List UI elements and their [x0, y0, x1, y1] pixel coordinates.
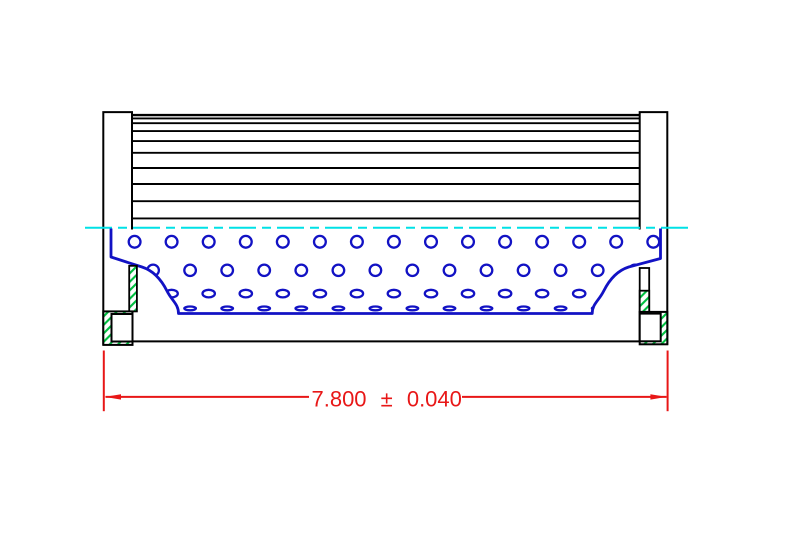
svg-text:7.800 ± 0.040: 7.800 ± 0.040 — [311, 386, 461, 411]
